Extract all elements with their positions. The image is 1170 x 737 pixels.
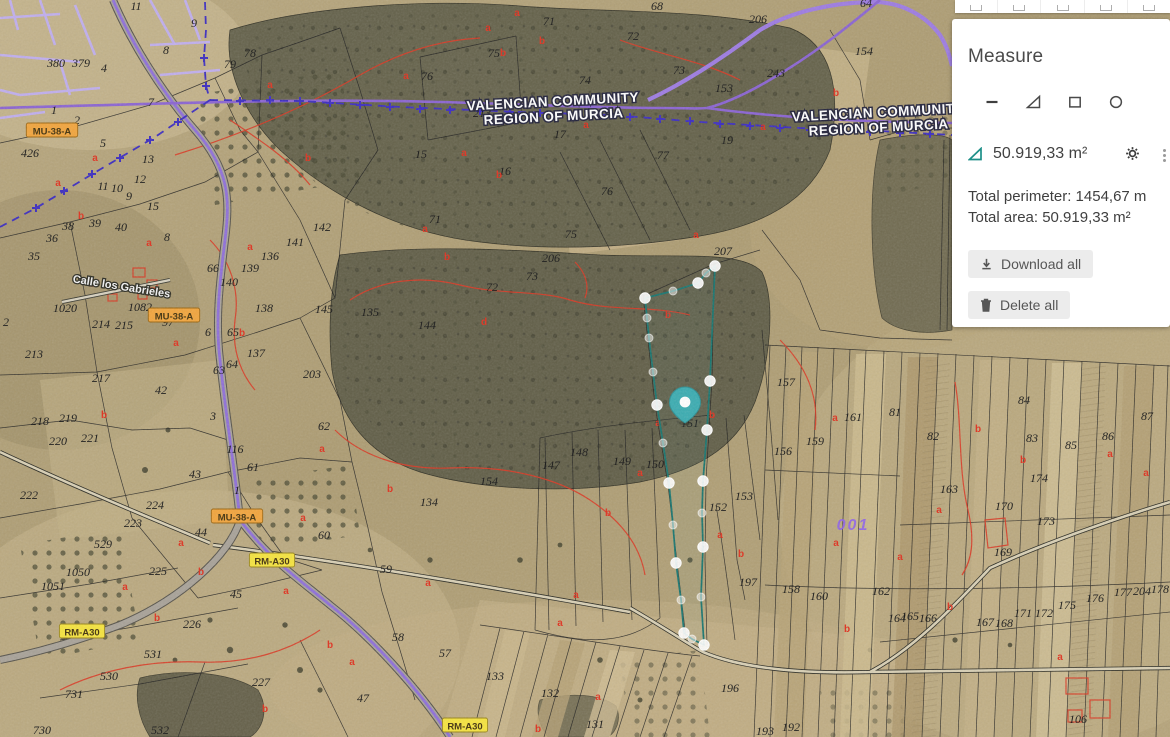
circle-icon <box>1108 94 1124 110</box>
download-all-button[interactable]: Download all <box>968 250 1093 278</box>
toolbar-icon-stub <box>1013 5 1025 11</box>
toolbar-button-stub[interactable] <box>1084 0 1127 13</box>
measurement-value: 50.919,33 m² <box>993 145 1087 163</box>
measure-tools-row <box>982 92 1154 112</box>
toolbar-button-stub[interactable] <box>997 0 1040 13</box>
toolbar-icon-stub <box>1100 5 1112 11</box>
map-toolbar-partial <box>955 0 1170 13</box>
total-area: Total area: 50.919,33 m² <box>968 207 1154 228</box>
line-tool-button[interactable] <box>982 92 1002 112</box>
toolbar-button-stub[interactable] <box>1040 0 1083 13</box>
measure-panel: Measure 50.919,33 m² <box>952 19 1170 327</box>
measurement-totals: Total perimeter: 1454,67 m Total area: 5… <box>968 186 1154 228</box>
circle-tool-button[interactable] <box>1106 92 1126 112</box>
toolbar-button-stub[interactable] <box>1127 0 1170 13</box>
line-minus-icon <box>984 94 1000 110</box>
area-triangle-icon <box>968 147 983 161</box>
rectangle-icon <box>1067 94 1083 110</box>
trash-icon <box>980 298 992 312</box>
gear-icon <box>1125 146 1140 161</box>
area-triangle-icon <box>1025 94 1042 110</box>
measurement-result-row[interactable]: 50.919,33 m² <box>968 145 1154 163</box>
area-tool-button[interactable] <box>1023 92 1044 112</box>
total-perimeter: Total perimeter: 1454,67 m <box>968 186 1154 207</box>
measurement-settings-button[interactable] <box>1125 146 1140 161</box>
download-icon <box>980 257 993 271</box>
toolbar-icon-stub <box>1143 5 1155 11</box>
panel-title: Measure <box>968 46 1154 68</box>
download-all-label: Download all <box>1001 256 1081 272</box>
rectangle-tool-button[interactable] <box>1065 92 1085 112</box>
delete-all-button[interactable]: Delete all <box>968 291 1070 319</box>
delete-all-label: Delete all <box>1000 297 1058 313</box>
toolbar-button-stub[interactable] <box>955 0 997 13</box>
toolbar-icon-stub <box>1057 5 1069 11</box>
kebab-menu-icon[interactable] <box>1163 147 1167 164</box>
toolbar-icon-stub <box>970 5 982 11</box>
